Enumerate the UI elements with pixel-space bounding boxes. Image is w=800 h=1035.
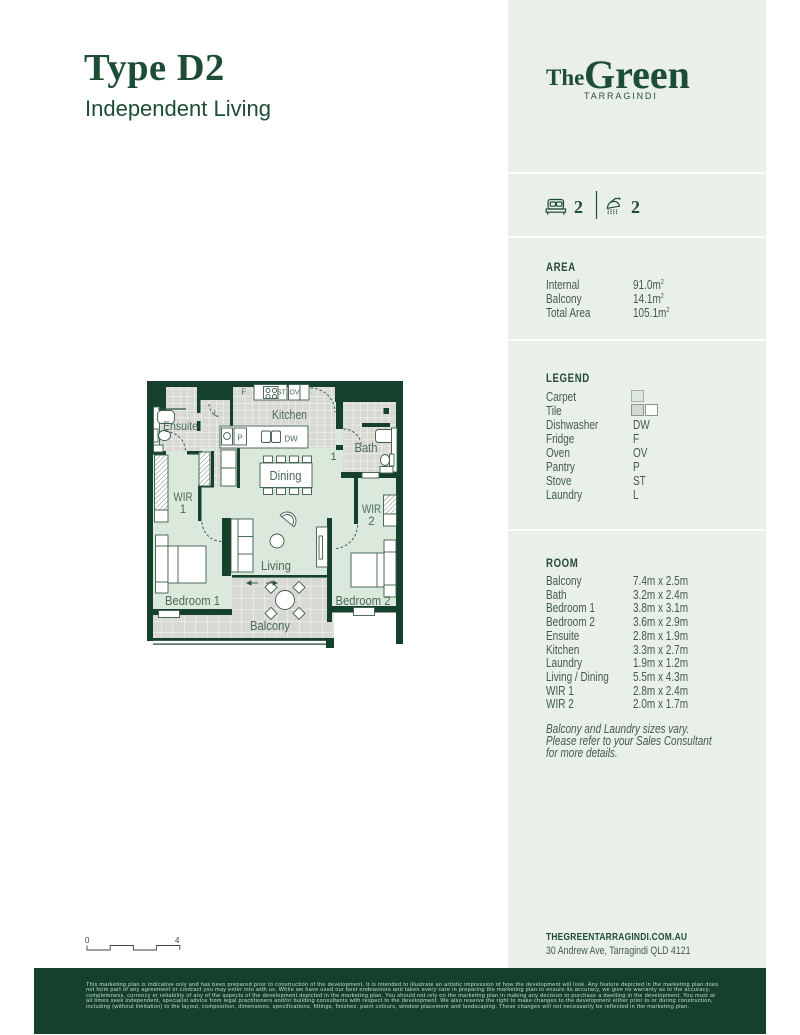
svg-text:Kitchen: Kitchen: [272, 408, 307, 422]
svg-text:L: L: [214, 409, 219, 418]
svg-text:2: 2: [368, 516, 374, 528]
svg-text:P: P: [237, 434, 242, 443]
svg-text:Dining: Dining: [270, 469, 302, 483]
svg-text:Bedroom 1: Bedroom 1: [165, 594, 220, 608]
svg-text:F: F: [242, 388, 247, 397]
svg-text:WIR: WIR: [174, 492, 193, 504]
svg-text:1: 1: [180, 504, 186, 516]
svg-text:1: 1: [330, 451, 336, 463]
svg-text:ST: ST: [277, 390, 287, 397]
svg-text:Bedroom 2: Bedroom 2: [336, 594, 391, 608]
svg-text:WIR: WIR: [362, 504, 381, 516]
svg-text:Ensuite: Ensuite: [163, 419, 198, 433]
svg-text:DW: DW: [284, 435, 298, 444]
svg-text:OV: OV: [289, 390, 299, 397]
svg-text:Bath: Bath: [355, 441, 378, 455]
svg-text:Balcony: Balcony: [250, 619, 291, 633]
svg-text:Living: Living: [261, 559, 291, 573]
